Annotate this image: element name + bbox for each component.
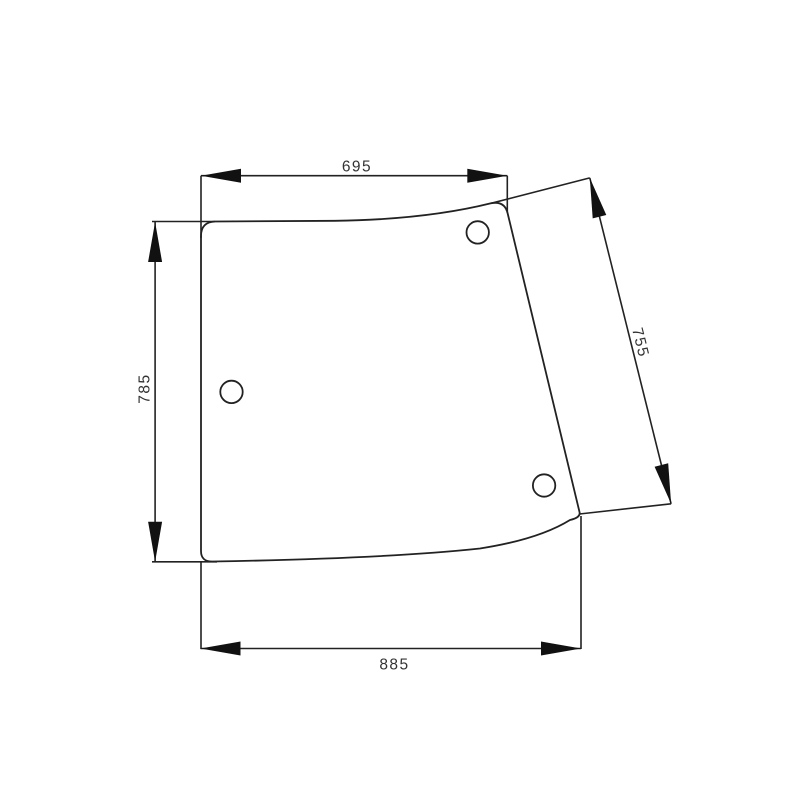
svg-text:785: 785 [137, 373, 154, 403]
svg-text:695: 695 [342, 159, 372, 176]
svg-text:885: 885 [379, 657, 409, 674]
